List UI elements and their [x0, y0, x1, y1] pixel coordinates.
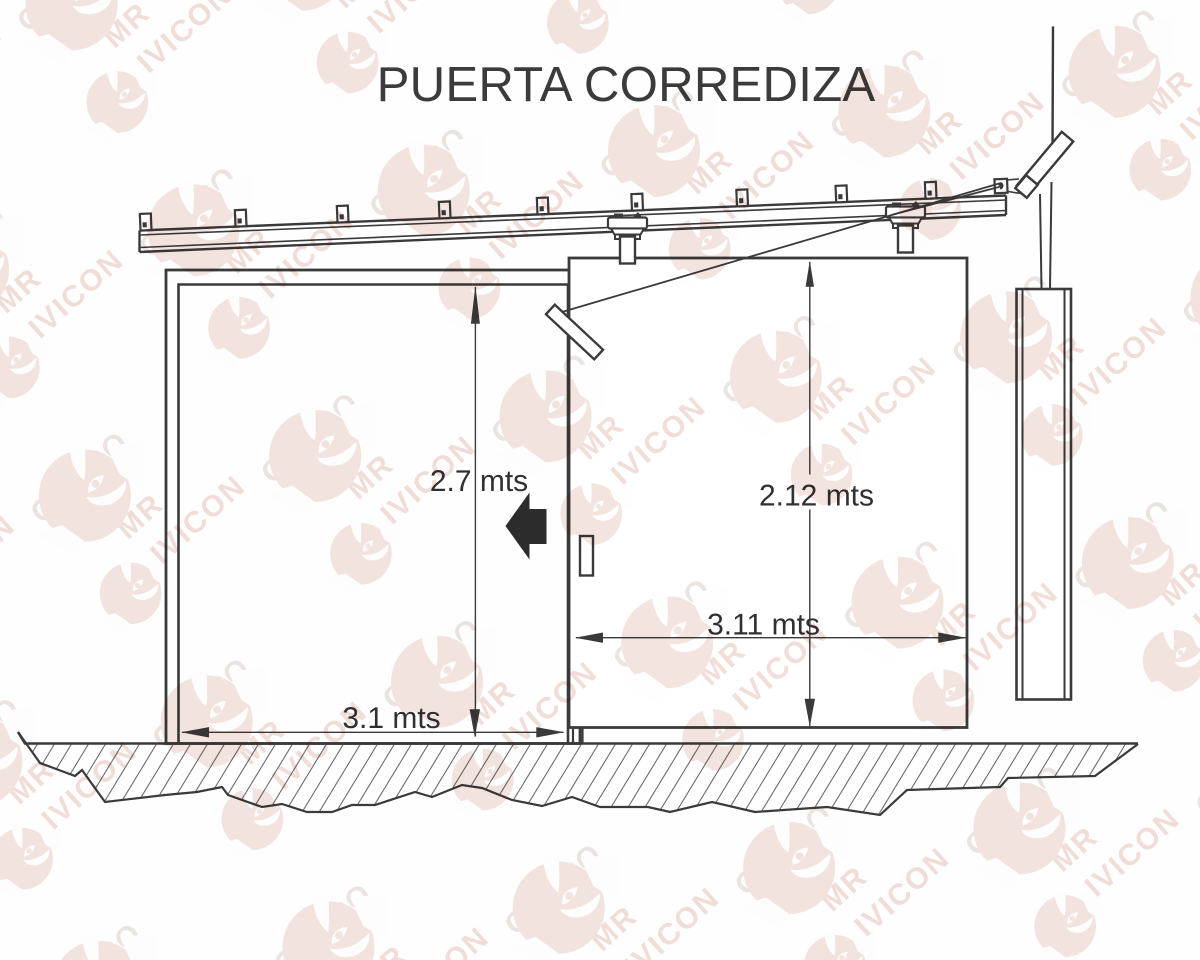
svg-text:IVICON: IVICON — [0, 509, 22, 611]
svg-text:IVICON: IVICON — [361, 0, 469, 40]
svg-text:IVICON: IVICON — [0, 17, 9, 119]
svg-text:GRUPO: GRUPO — [1189, 718, 1200, 823]
